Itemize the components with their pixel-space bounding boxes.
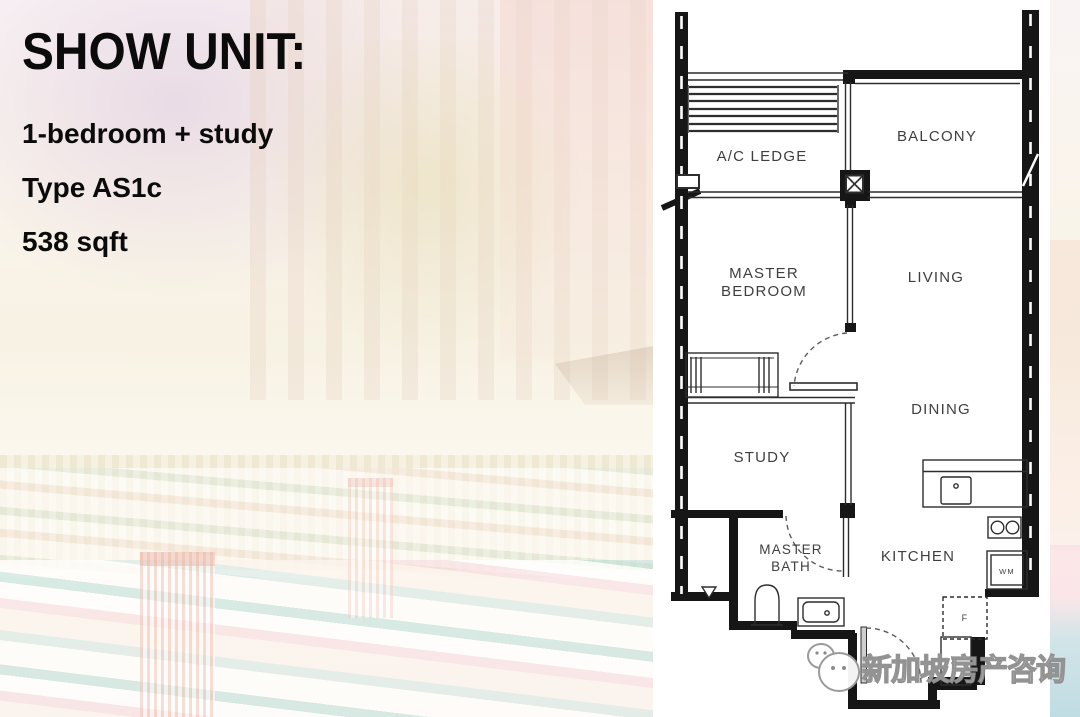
wechat-icon (800, 640, 862, 694)
watermark-text: 新加坡房产咨询 (862, 645, 1065, 689)
kitchen-sink (941, 477, 971, 504)
page-title: SHOW UNIT: (22, 22, 306, 82)
wardrobe-ends (691, 357, 769, 393)
bedroom-door-swing (794, 333, 847, 386)
label-master-bath-2: BATH (771, 559, 811, 574)
bedroom-window (688, 192, 840, 198)
hob-burner-left (991, 521, 1004, 534)
bath-pocket-door (844, 518, 849, 577)
study-dining-partition (846, 403, 852, 505)
unit-info-block: SHOW UNIT: 1-bedroom + study Type AS1c 5… (22, 22, 331, 258)
label-balcony: BALCONY (897, 128, 977, 145)
vanity-basin (803, 602, 839, 622)
sink-tap (954, 484, 958, 488)
bedroom-door-leaf (790, 383, 857, 390)
louvre-slats (689, 87, 837, 131)
hob-burner-right (1006, 521, 1019, 534)
vanity-tap (825, 611, 829, 615)
label-kitchen: KITCHEN (881, 548, 955, 565)
slide: SHOW UNIT: 1-bedroom + study Type AS1c 5… (0, 0, 1080, 717)
ledge-column (677, 175, 699, 188)
label-dining: DINING (911, 401, 971, 418)
ledge-balcony-divider (846, 82, 851, 170)
label-master-bedroom-2: BEDROOM (721, 283, 807, 300)
kitchen-counter (923, 460, 1027, 507)
unit-model-line: Type AS1c (22, 172, 331, 204)
unit-area-line: 538 sqft (22, 226, 331, 258)
bedroom-study-wall (688, 398, 855, 404)
walls (671, 10, 1039, 709)
ac-ledge-top-lines (688, 73, 848, 80)
watermark: 新加坡房产咨询 (800, 640, 1065, 694)
toilet (751, 585, 783, 625)
label-ac-ledge: A/C LEDGE (717, 148, 808, 165)
floor-plan: A/C LEDGE BALCONY MASTER BEDROOM LIVING … (653, 0, 1080, 717)
label-fridge: F (962, 613, 969, 623)
label-study: STUDY (734, 449, 791, 466)
label-living: LIVING (908, 269, 964, 286)
label-master-bedroom-1: MASTER (729, 265, 799, 282)
unit-type-line: 1-bedroom + study (22, 118, 331, 150)
bedroom-living-partition (848, 205, 853, 323)
balcony-sliding-door (868, 192, 1022, 198)
label-master-bath-1: MASTER (759, 542, 822, 557)
label-washing-machine: WM (999, 567, 1015, 576)
